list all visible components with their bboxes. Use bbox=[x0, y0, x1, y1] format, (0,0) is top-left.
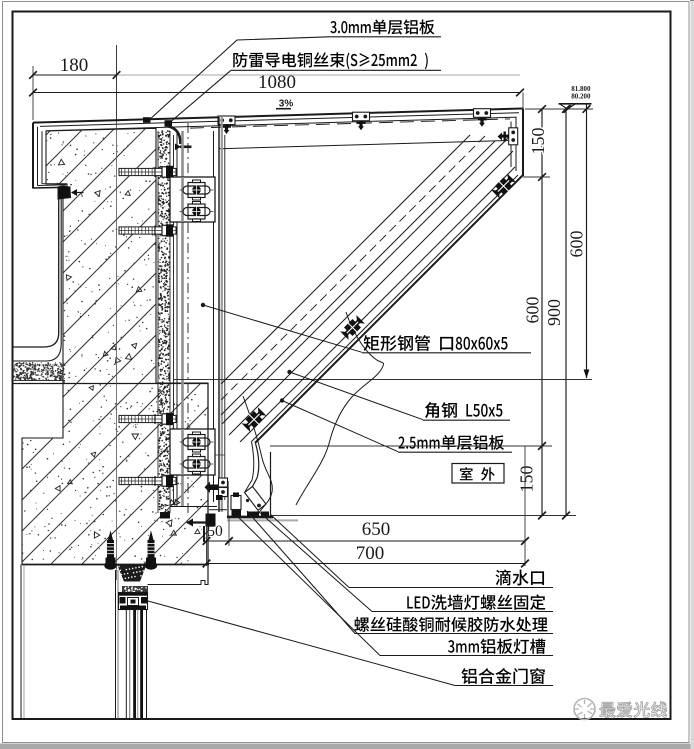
svg-text:150: 150 bbox=[528, 128, 548, 155]
svg-text:150: 150 bbox=[517, 466, 537, 493]
svg-text:600: 600 bbox=[567, 231, 587, 258]
svg-text:3%: 3% bbox=[279, 99, 294, 110]
svg-text:700: 700 bbox=[356, 543, 385, 564]
svg-text:600: 600 bbox=[523, 297, 543, 324]
svg-text:900: 900 bbox=[544, 299, 564, 326]
svg-text:80.200: 80.200 bbox=[571, 93, 591, 101]
svg-text:180: 180 bbox=[60, 55, 89, 76]
svg-text:650: 650 bbox=[362, 519, 391, 540]
svg-text:1080: 1080 bbox=[258, 72, 296, 93]
